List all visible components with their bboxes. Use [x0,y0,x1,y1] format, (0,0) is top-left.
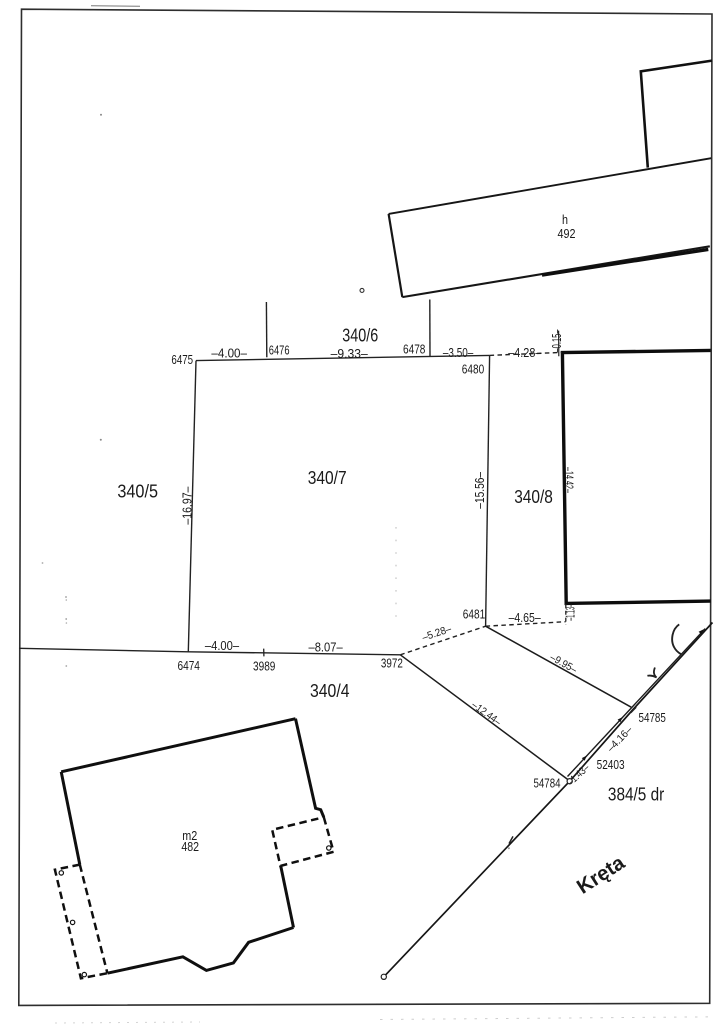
svg-text:–4.65–: –4.65– [509,610,542,625]
svg-text:340/6: 340/6 [342,326,378,346]
svg-text:6478: 6478 [403,341,425,356]
svg-text:54785: 54785 [639,710,666,725]
svg-text:340/4: 340/4 [310,681,350,701]
svg-text:340/5: 340/5 [117,482,158,502]
svg-text:6481: 6481 [463,607,485,622]
svg-text:6480: 6480 [462,362,484,377]
svg-text:6474: 6474 [178,658,200,673]
svg-text:340/7: 340/7 [308,468,347,488]
svg-text:54784: 54784 [534,775,561,790]
svg-text:–14.42–: –14.42– [562,467,576,493]
svg-text:–3.50–: –3.50– [443,345,474,360]
svg-text:3972: 3972 [381,656,403,671]
svg-text:492: 492 [558,226,576,241]
svg-text:–0.15–: –0.15– [549,329,564,352]
svg-text:–8.07–: –8.07– [309,639,344,654]
svg-text:6476: 6476 [269,343,290,358]
svg-text:482: 482 [181,839,199,854]
svg-text:–4.28–: –4.28– [508,345,542,360]
svg-text:3989: 3989 [253,659,275,674]
svg-text:384/5 dr: 384/5 dr [608,784,664,804]
svg-text:–15.56–: –15.56– [472,471,487,508]
svg-text:–16.97–: –16.97– [180,486,195,525]
svg-text:–1.13–: –1.13– [563,603,578,620]
svg-text:–4.00–: –4.00– [205,638,240,653]
svg-text:–9.33–: –9.33– [331,346,369,361]
svg-text:–4.00–: –4.00– [211,346,247,361]
svg-text:6475: 6475 [171,352,193,367]
svg-text:h: h [562,212,568,227]
svg-text:52403: 52403 [597,757,625,772]
svg-text:340/8: 340/8 [514,487,553,507]
